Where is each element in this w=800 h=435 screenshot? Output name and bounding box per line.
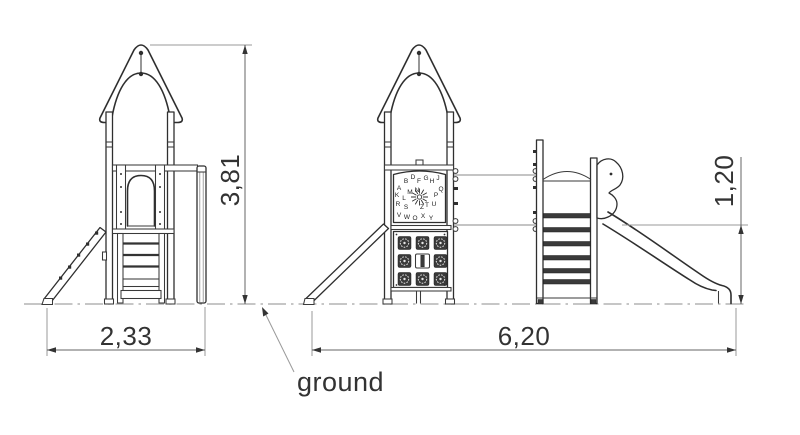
climber-arched-top xyxy=(543,172,591,182)
connecting-rails xyxy=(453,169,538,232)
panel-letter: X xyxy=(421,213,426,220)
panel-bottom-rail xyxy=(391,288,451,292)
center-support xyxy=(417,291,421,304)
dim-overall-length: 6,20 xyxy=(312,308,736,356)
panel-letter: R xyxy=(396,201,401,208)
flower-grid-play-panel xyxy=(394,232,448,288)
entrance-arch-opening xyxy=(128,176,155,227)
panel-letter: D xyxy=(411,174,416,181)
ground-annotation: ground xyxy=(262,307,384,397)
panel-letter: V xyxy=(397,212,402,219)
mid-rail-front xyxy=(113,229,175,234)
dim-label-overall-length: 6,20 xyxy=(498,321,551,351)
panel-letter: J xyxy=(436,175,439,182)
panel-letter: G xyxy=(423,175,428,182)
tower-roof-front xyxy=(100,45,183,123)
side-elevation-climber-slide xyxy=(533,140,731,304)
roof-tab xyxy=(416,160,423,165)
slide-side-panel xyxy=(597,159,623,219)
panel-letter: A xyxy=(397,185,402,192)
technical-drawing-canvas: ABDFGHJKLMNPQRSTUVWOXYZ xyxy=(0,0,800,435)
interior-ladder-front xyxy=(118,234,165,304)
panel-letter: S xyxy=(404,204,409,211)
panel-letter: H xyxy=(430,178,435,185)
alphabet-play-panel: ABDFGHJKLMNPQRSTUVWOXYZ xyxy=(394,171,446,223)
panel-letter: L xyxy=(402,195,406,202)
panel-letter: P xyxy=(434,192,438,199)
panel-letter: B xyxy=(404,178,408,185)
platform-rail-side xyxy=(385,165,454,170)
panel-letter: W xyxy=(404,214,411,221)
slide-end-on xyxy=(197,166,206,303)
panel-letter: F xyxy=(417,178,421,185)
side-elevation-tower: ABDFGHJKLMNPQRSTUVWOXYZ xyxy=(304,45,538,305)
panel-letter: N xyxy=(415,187,420,194)
climbing-wall-slats xyxy=(537,214,597,299)
front-elevation-view xyxy=(42,45,206,305)
panel-letter: K xyxy=(395,192,400,199)
dim-label-front-width: 2,33 xyxy=(100,321,153,351)
panel-letter: M xyxy=(407,189,412,196)
dim-front-width: 2,33 xyxy=(47,307,205,356)
exterior-ladder-front xyxy=(42,228,106,305)
panel-divider-rail xyxy=(391,226,451,230)
dim-label-overall-height: 3,81 xyxy=(215,154,245,207)
panel-letter: O xyxy=(412,215,417,222)
panel-letter: Q xyxy=(438,186,443,193)
exterior-ladder-side xyxy=(304,224,389,305)
dim-label-platform-height: 1,20 xyxy=(709,155,739,208)
slide xyxy=(603,212,731,304)
spinner-cell xyxy=(416,254,430,268)
ground-label: ground xyxy=(297,367,384,397)
panel-letter: Y xyxy=(429,215,434,222)
dim-platform-height: 1,20 xyxy=(622,155,748,304)
panel-letter: U xyxy=(432,201,437,208)
panel-letter: T xyxy=(425,202,429,209)
panel-letter: Z xyxy=(420,204,424,211)
tower-roof-side xyxy=(378,45,461,123)
